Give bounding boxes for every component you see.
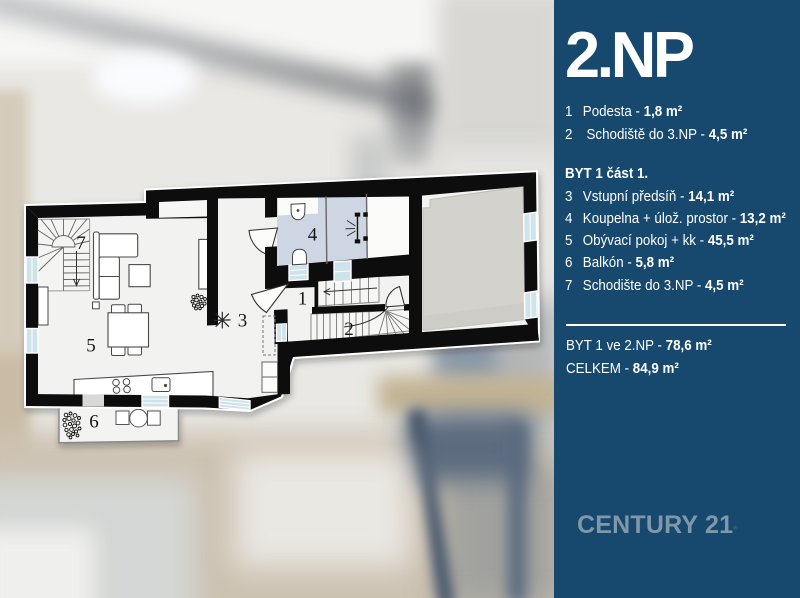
svg-text:4: 4 bbox=[308, 225, 318, 246]
svg-text:3: 3 bbox=[238, 311, 248, 332]
svg-text:7: 7 bbox=[76, 233, 86, 254]
svg-text:1: 1 bbox=[298, 289, 308, 310]
svg-text:2: 2 bbox=[344, 319, 354, 340]
svg-text:6: 6 bbox=[89, 412, 99, 433]
svg-text:5: 5 bbox=[86, 336, 96, 357]
